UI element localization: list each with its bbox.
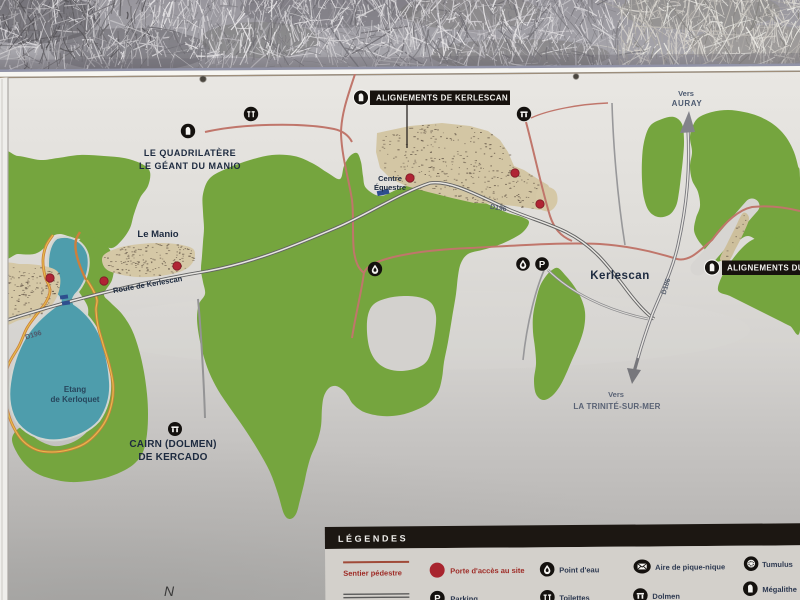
svg-text:LE QUADRILATÈRE: LE QUADRILATÈRE	[144, 148, 236, 158]
svg-text:CAIRN (DOLMEN): CAIRN (DOLMEN)	[129, 439, 216, 450]
svg-text:Parking: Parking	[450, 594, 478, 600]
svg-text:Vers: Vers	[678, 89, 694, 98]
svg-text:DE KERCADO: DE KERCADO	[138, 452, 207, 463]
svg-text:Porte d'accès au site: Porte d'accès au site	[450, 566, 524, 576]
svg-text:ALIGNEMENTS DU: ALIGNEMENTS DU	[727, 264, 800, 273]
svg-text:LE GÉANT DU MANIO: LE GÉANT DU MANIO	[139, 161, 241, 171]
svg-text:Mégalithe: Mégalithe	[762, 585, 797, 594]
svg-text:Aire de pique-nique: Aire de pique-nique	[655, 562, 725, 572]
svg-text:Dolmen: Dolmen	[652, 592, 680, 600]
svg-text:ALIGNEMENTS DE KERLESCAN: ALIGNEMENTS DE KERLESCAN	[376, 94, 508, 103]
svg-text:Etang: Etang	[64, 385, 86, 394]
svg-text:P: P	[539, 259, 546, 270]
svg-text:LA TRINITÉ-SUR-MER: LA TRINITÉ-SUR-MER	[573, 402, 660, 411]
svg-text:Vers: Vers	[608, 390, 624, 399]
svg-text:Le Manio: Le Manio	[137, 229, 178, 240]
svg-text:Équestre: Équestre	[374, 183, 406, 192]
svg-text:AURAY: AURAY	[672, 99, 703, 108]
svg-text:Tumulus: Tumulus	[762, 560, 793, 569]
svg-text:Centre: Centre	[378, 174, 402, 183]
svg-text:LÉGENDES: LÉGENDES	[338, 533, 408, 544]
svg-text:N: N	[164, 583, 175, 599]
svg-text:P: P	[434, 593, 441, 600]
svg-text:Sentier pédestre: Sentier pédestre	[343, 568, 402, 577]
svg-text:Toilettes: Toilettes	[559, 593, 589, 600]
svg-text:Kerlescan: Kerlescan	[590, 270, 649, 282]
svg-text:Point d'eau: Point d'eau	[559, 565, 600, 574]
svg-text:de Kerloquet: de Kerloquet	[51, 395, 100, 404]
